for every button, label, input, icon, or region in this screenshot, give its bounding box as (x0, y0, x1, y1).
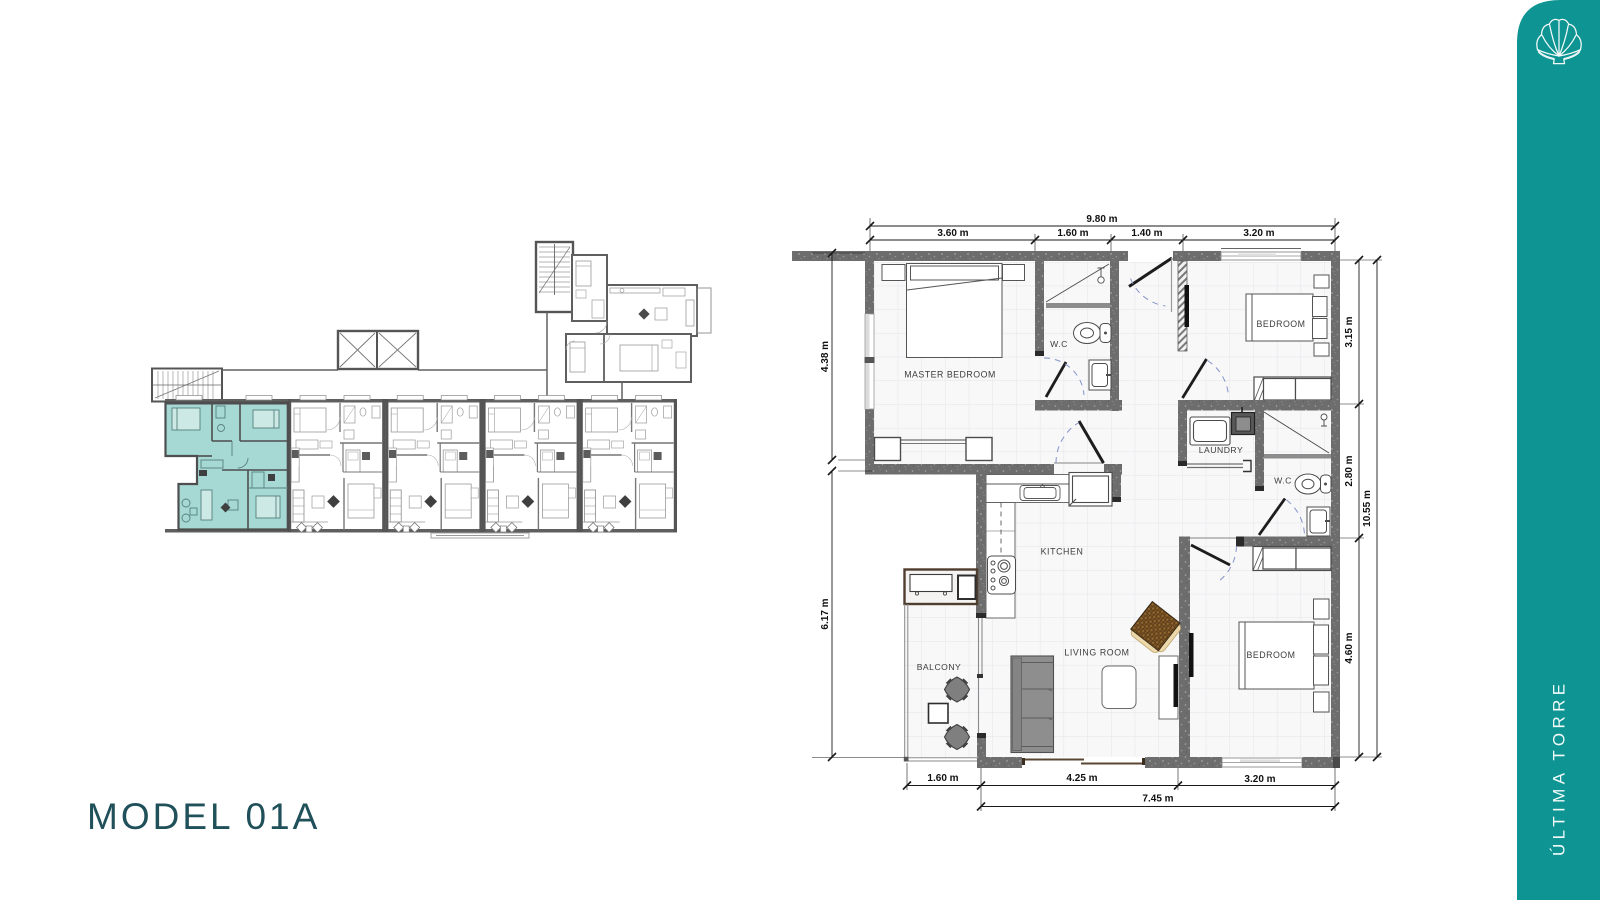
svg-text:10.55 m: 10.55 m (1362, 490, 1373, 527)
svg-text:4.60 m: 4.60 m (1344, 632, 1355, 663)
svg-text:KITCHEN: KITCHEN (1041, 547, 1084, 557)
svg-text:MODEL 01A: MODEL 01A (87, 796, 320, 837)
svg-text:1.40 m: 1.40 m (1131, 228, 1162, 239)
svg-text:BALCONY: BALCONY (917, 662, 962, 672)
svg-text:3.15 m: 3.15 m (1344, 316, 1355, 347)
svg-text:3.20 m: 3.20 m (1243, 228, 1274, 239)
svg-text:6.17 m: 6.17 m (820, 598, 831, 629)
svg-text:BEDROOM: BEDROOM (1247, 650, 1296, 660)
svg-text:3.60 m: 3.60 m (937, 228, 968, 239)
svg-text:9.80 m: 9.80 m (1086, 214, 1117, 225)
svg-text:2.80 m: 2.80 m (1344, 455, 1355, 486)
svg-text:3.20 m: 3.20 m (1244, 774, 1275, 785)
svg-text:BEDROOM: BEDROOM (1257, 319, 1306, 329)
svg-text:W.C: W.C (1274, 476, 1292, 486)
svg-text:MASTER BEDROOM: MASTER BEDROOM (904, 370, 996, 380)
svg-text:ÚLTIMA TORRE: ÚLTIMA TORRE (1550, 679, 1569, 856)
svg-text:4.25 m: 4.25 m (1066, 773, 1097, 784)
svg-text:W.C: W.C (1050, 339, 1068, 349)
svg-text:4.38 m: 4.38 m (820, 341, 831, 372)
svg-text:LIVING ROOM: LIVING ROOM (1064, 648, 1129, 658)
svg-text:1.60 m: 1.60 m (927, 773, 958, 784)
svg-text:1.60 m: 1.60 m (1057, 228, 1088, 239)
svg-text:7.45 m: 7.45 m (1142, 794, 1173, 805)
svg-text:LAUNDRY: LAUNDRY (1199, 445, 1243, 455)
